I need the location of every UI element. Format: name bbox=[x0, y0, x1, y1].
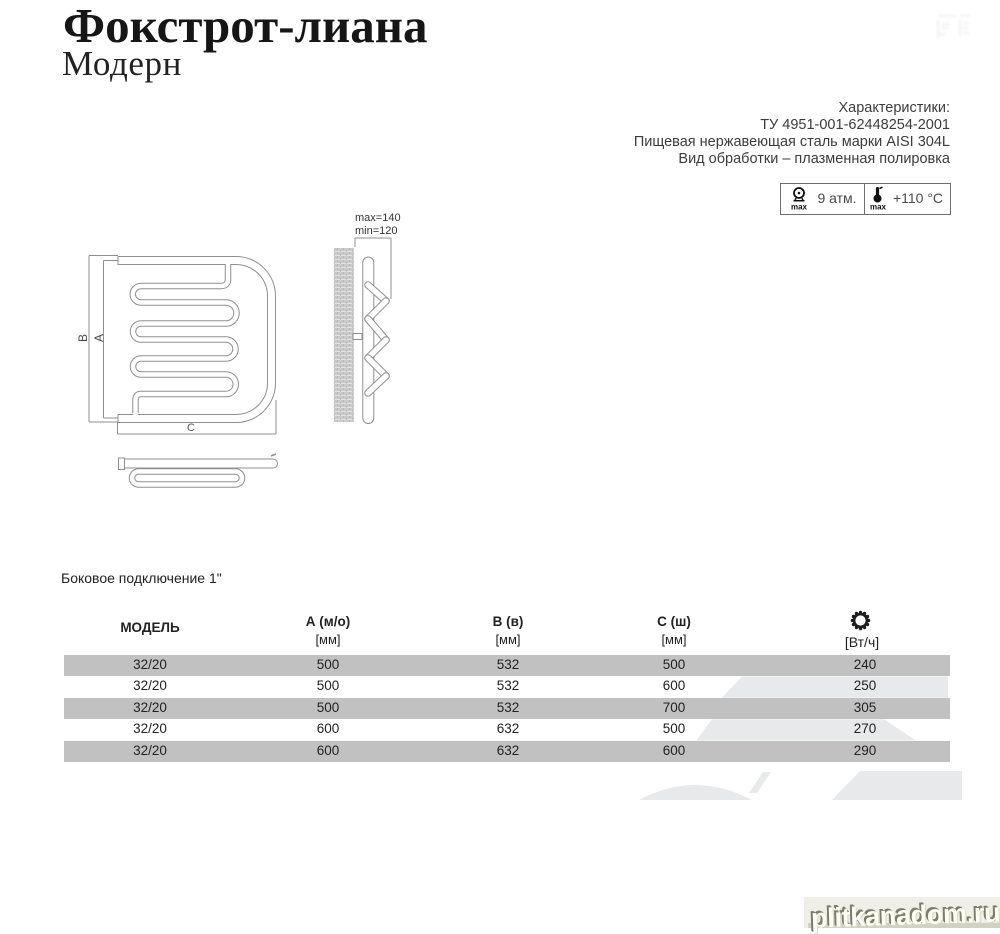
svg-text:A: A bbox=[92, 334, 106, 342]
svg-text:max: max bbox=[791, 203, 808, 212]
svg-text:B: B bbox=[76, 334, 90, 342]
svg-text:max=140: max=140 bbox=[355, 212, 401, 224]
svg-text:min=120: min=120 bbox=[355, 225, 398, 237]
svg-text:C: C bbox=[187, 422, 195, 434]
svg-text:max: max bbox=[870, 203, 887, 212]
